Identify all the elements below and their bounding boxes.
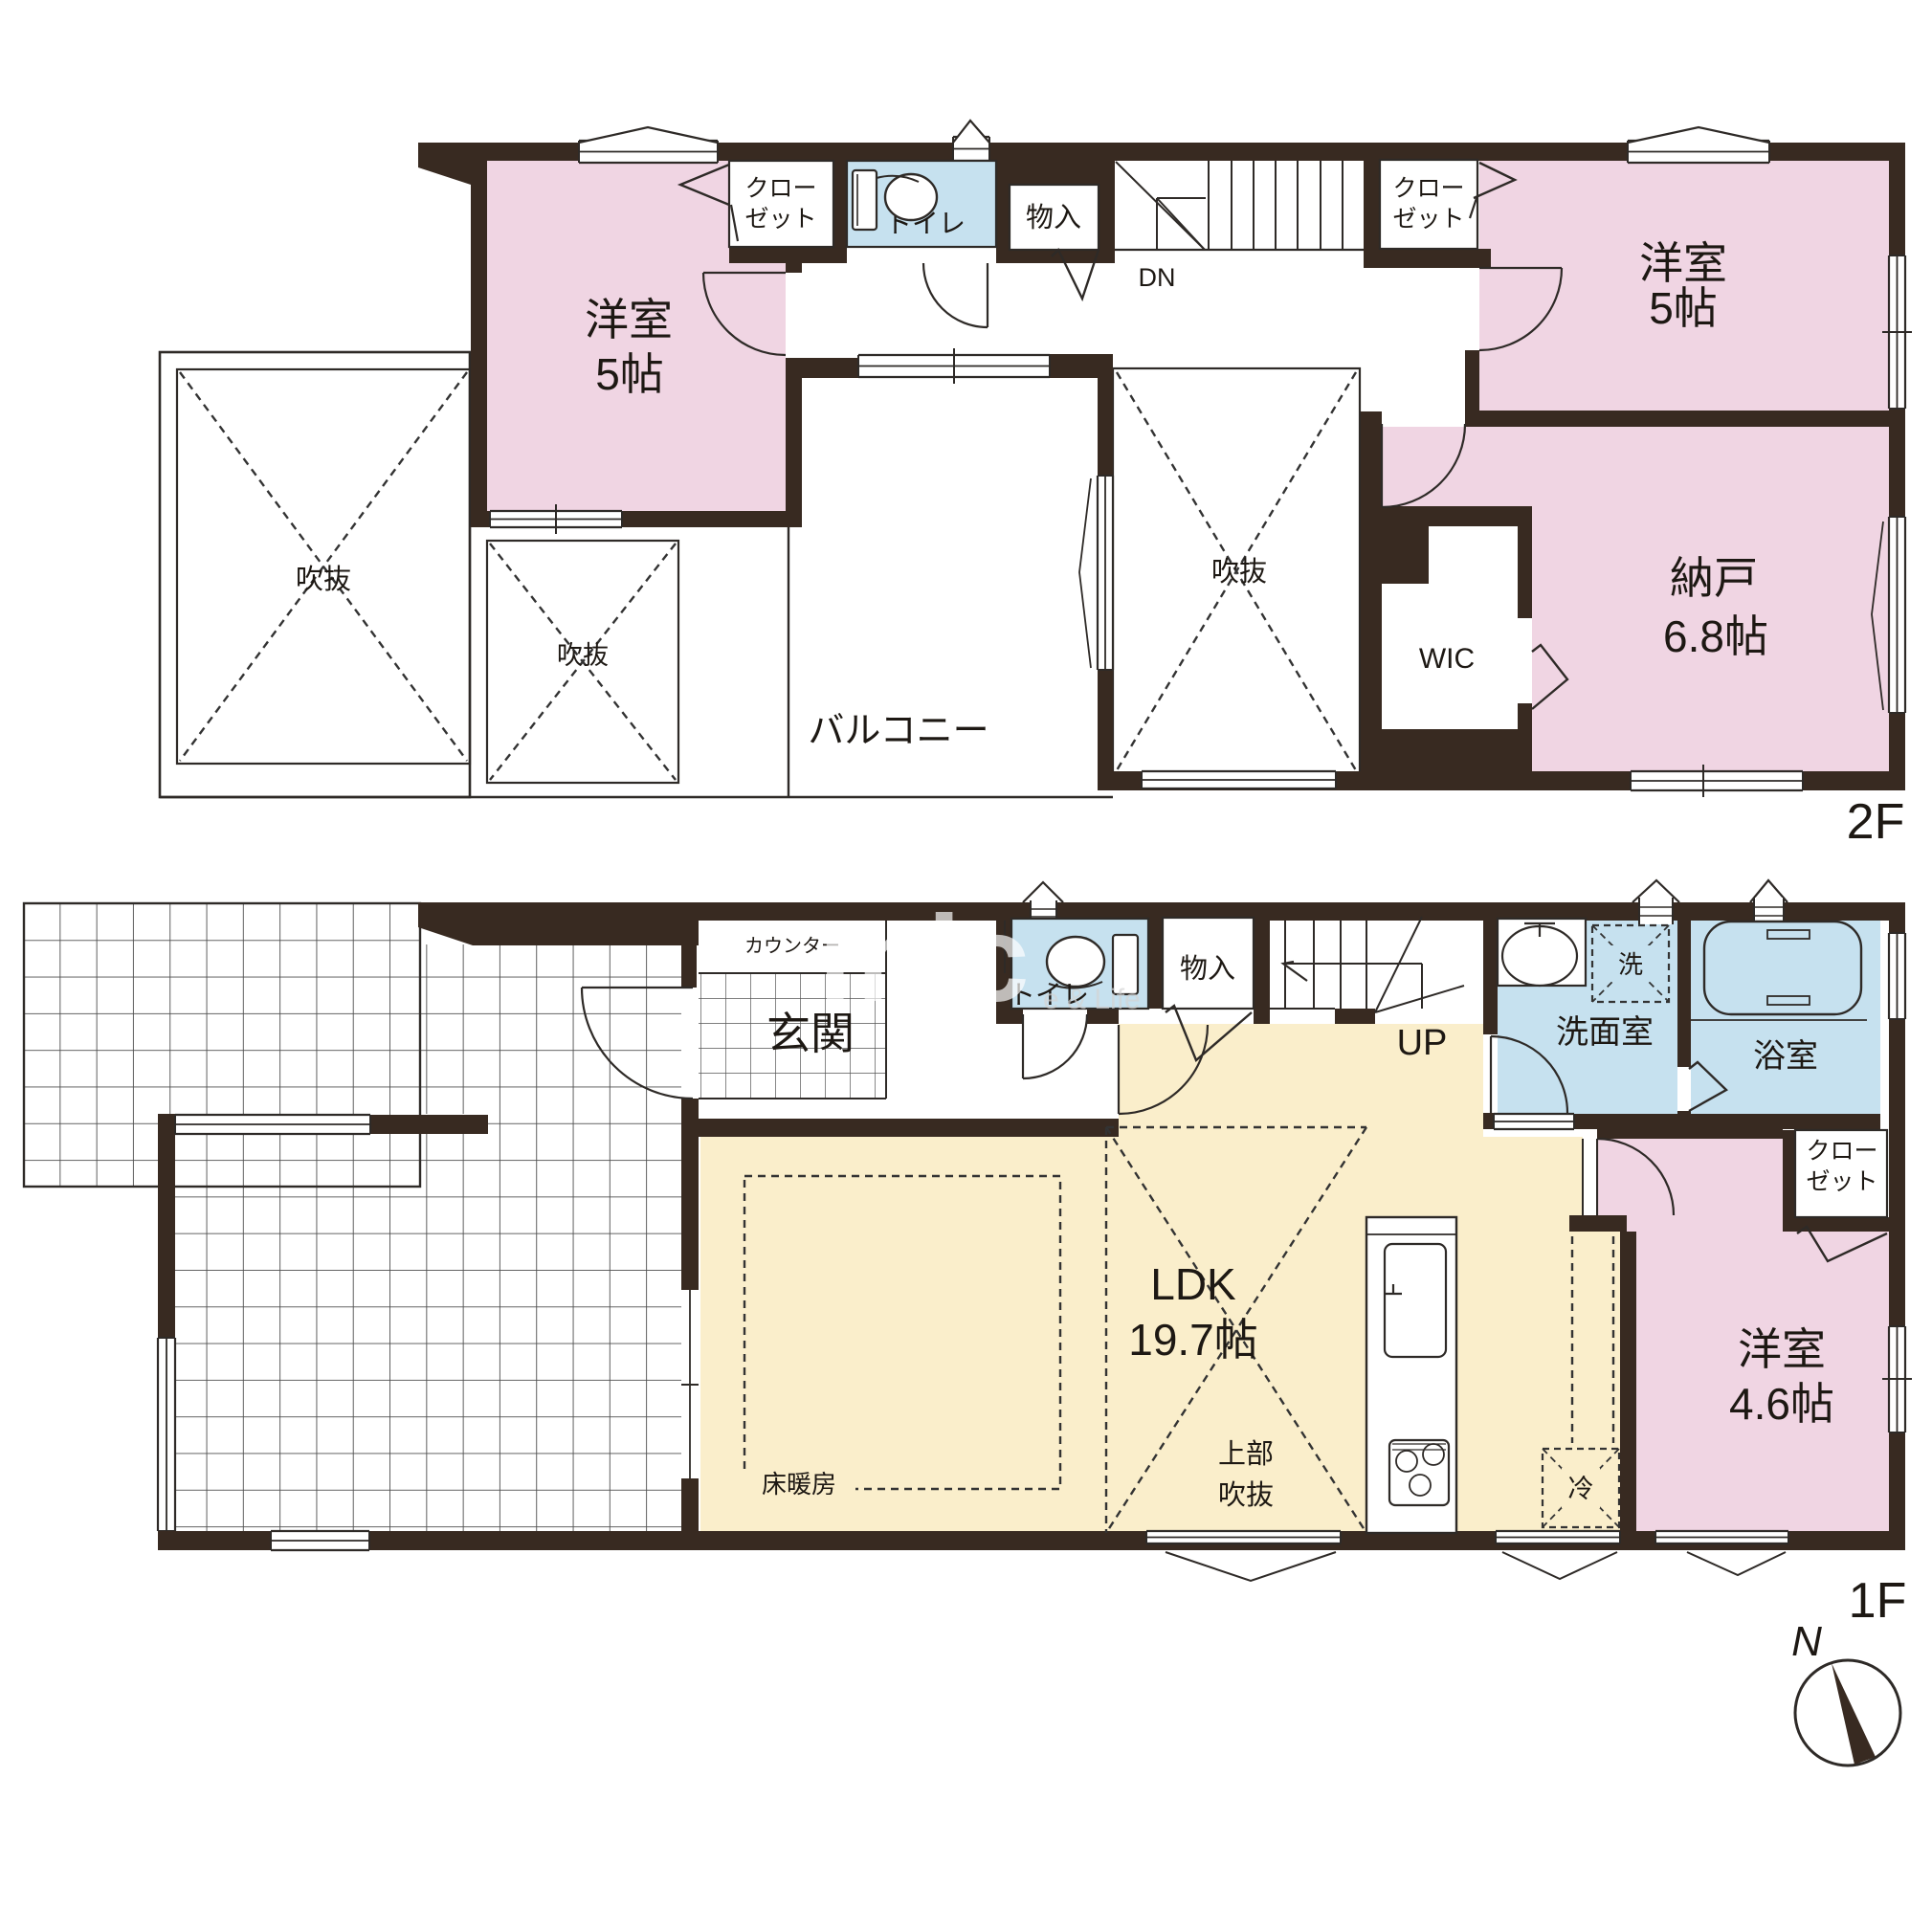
svg-text:5帖: 5帖 bbox=[595, 349, 664, 399]
svg-text:吹抜: 吹抜 bbox=[1218, 1479, 1274, 1511]
svg-text:e & Life: e & Life bbox=[1043, 984, 1141, 1015]
svg-text:バルコニー: バルコニー bbox=[808, 711, 988, 751]
svg-text:吹抜: 吹抜 bbox=[557, 641, 609, 670]
svg-text:N: N bbox=[1791, 1618, 1822, 1665]
svg-text:洋室: 洋室 bbox=[1639, 238, 1727, 288]
svg-text:吹抜: 吹抜 bbox=[1211, 556, 1267, 588]
svg-text:クロー: クロー bbox=[744, 175, 816, 202]
svg-text:19.7帖: 19.7帖 bbox=[1128, 1315, 1258, 1365]
svg-text:ゼット: ゼット bbox=[1806, 1168, 1877, 1195]
svg-text:ゼット: ゼット bbox=[744, 206, 816, 233]
svg-text:洗: 洗 bbox=[1618, 950, 1643, 979]
svg-text:4.6帖: 4.6帖 bbox=[1729, 1379, 1834, 1429]
svg-text:洋室: 洋室 bbox=[585, 295, 673, 344]
svg-text:上部: 上部 bbox=[1218, 1438, 1274, 1470]
svg-text:物入: 物入 bbox=[1026, 202, 1081, 233]
svg-text:冷: 冷 bbox=[1568, 1475, 1594, 1503]
svg-text:UP: UP bbox=[1397, 1023, 1448, 1063]
svg-text:5帖: 5帖 bbox=[1649, 283, 1718, 333]
svg-text:1F: 1F bbox=[1849, 1573, 1907, 1629]
svg-text:吹抜: 吹抜 bbox=[296, 564, 351, 595]
svg-text:DN: DN bbox=[1139, 263, 1176, 292]
svg-text:クロー: クロー bbox=[1392, 175, 1464, 202]
svg-text:物入: 物入 bbox=[1180, 953, 1235, 985]
svg-text:浴室: 浴室 bbox=[1753, 1038, 1818, 1075]
svg-text:mic: mic bbox=[818, 891, 1030, 1028]
svg-text:ゼット: ゼット bbox=[1392, 206, 1464, 233]
svg-text:クロー: クロー bbox=[1806, 1138, 1877, 1165]
svg-text:2F: 2F bbox=[1847, 794, 1905, 850]
svg-text:WIC: WIC bbox=[1419, 643, 1475, 675]
svg-text:6.8帖: 6.8帖 bbox=[1663, 611, 1768, 661]
svg-text:洋室: 洋室 bbox=[1738, 1324, 1826, 1374]
svg-text:洗面室: 洗面室 bbox=[1556, 1014, 1654, 1051]
svg-text:床暖房: 床暖房 bbox=[762, 1470, 836, 1499]
svg-text:納戸: 納戸 bbox=[1670, 553, 1758, 603]
svg-text:LDK: LDK bbox=[1150, 1259, 1236, 1309]
